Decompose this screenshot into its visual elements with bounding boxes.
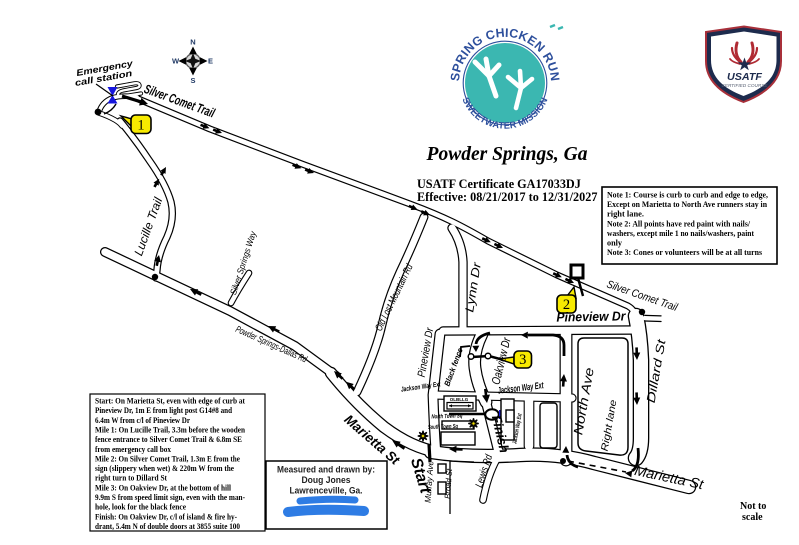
svg-text:Finish: On Oakview Dr, c/l of: Finish: On Oakview Dr, c/l of island & f… [95, 511, 237, 521]
svg-text:1: 1 [137, 118, 144, 134]
svg-text:drant, 5.4m N of double doors: drant, 5.4m N of double doors at 3855 su… [95, 521, 240, 531]
svg-text:6.4m W from c/l of Pineview Dr: 6.4m W from c/l of Pineview Dr [95, 415, 190, 425]
svg-text:Powder Springs, Ga: Powder Springs, Ga [426, 144, 588, 165]
svg-text:E: E [208, 57, 213, 66]
svg-text:scale: scale [742, 512, 763, 523]
svg-text:right lane.: right lane. [607, 209, 644, 219]
svg-text:fence entrance to Silver Comet: fence entrance to Silver Comet Trail & 6… [95, 434, 242, 444]
svg-text:S: S [190, 76, 195, 85]
svg-text:Mile 3: On Oakview Dr, at the: Mile 3: On Oakview Dr, at the bottom of … [95, 482, 232, 492]
svg-text:Doug Jones: Doug Jones [302, 475, 351, 485]
svg-text:N: N [190, 38, 195, 47]
svg-text:USATF Certificate GA17033DJ: USATF Certificate GA17033DJ [417, 177, 581, 191]
svg-text:Start: On Marietta St, even wi: Start: On Marietta St, even with edge of… [95, 396, 245, 406]
svg-text:Pineview Dr, 1m E from light p: Pineview Dr, 1m E from light post G14#8 … [95, 405, 232, 415]
svg-text:sign (slippery when wet) & 220: sign (slippery when wet) & 220m W from t… [95, 463, 234, 473]
svg-text:W: W [172, 57, 180, 66]
svg-text:Except on Marietta to North Av: Except on Marietta to North Ave runners … [607, 199, 767, 209]
svg-text:right turn to Dillard St: right turn to Dillard St [95, 473, 167, 483]
svg-text:from emergency call box: from emergency call box [95, 444, 172, 454]
svg-text:CERTIFIED COURSE: CERTIFIED COURSE [722, 83, 769, 89]
svg-text:Effective: 08/21/2017 to 12/31: Effective: 08/21/2017 to 12/31/2027 [417, 190, 597, 204]
svg-text:South Town Sq: South Town Sq [428, 424, 458, 431]
svg-text:Mile 1: On Lucille Trail, 3.3m: Mile 1: On Lucille Trail, 3.3m before th… [95, 424, 245, 434]
svg-text:OLBLLG: OLBLLG [450, 397, 469, 402]
svg-text:North Town Sq: North Town Sq [431, 413, 462, 420]
svg-text:Note 1: Course is curb to curb: Note 1: Course is curb to curb and edge … [607, 190, 768, 200]
svg-text:3: 3 [519, 352, 526, 368]
svg-text:Lawrenceville, Ga.: Lawrenceville, Ga. [290, 486, 363, 496]
svg-text:Note 2: All points have red pa: Note 2: All points have red paint with n… [607, 218, 751, 228]
svg-text:hole, look for the black fence: hole, look for the black fence [95, 502, 186, 512]
svg-text:USATF: USATF [727, 72, 763, 83]
svg-text:Measured and drawn by:: Measured and drawn by: [277, 465, 375, 475]
svg-text:9.9m S from speed limit sign,: 9.9m S from speed limit sign, even with … [95, 492, 245, 502]
svg-text:Mile 2: On Silver Comet Trail,: Mile 2: On Silver Comet Trail, 1.3m E fr… [95, 453, 240, 463]
svg-text:Not to: Not to [740, 501, 766, 512]
svg-text:only: only [607, 238, 623, 248]
svg-text:washers, except mile 1 no nail: washers, except mile 1 no nails/washers,… [607, 228, 754, 238]
svg-text:Note 3: Cones or volunteers wi: Note 3: Cones or volunteers will be at a… [607, 247, 763, 257]
svg-text:Pineview Dr: Pineview Dr [556, 308, 626, 324]
